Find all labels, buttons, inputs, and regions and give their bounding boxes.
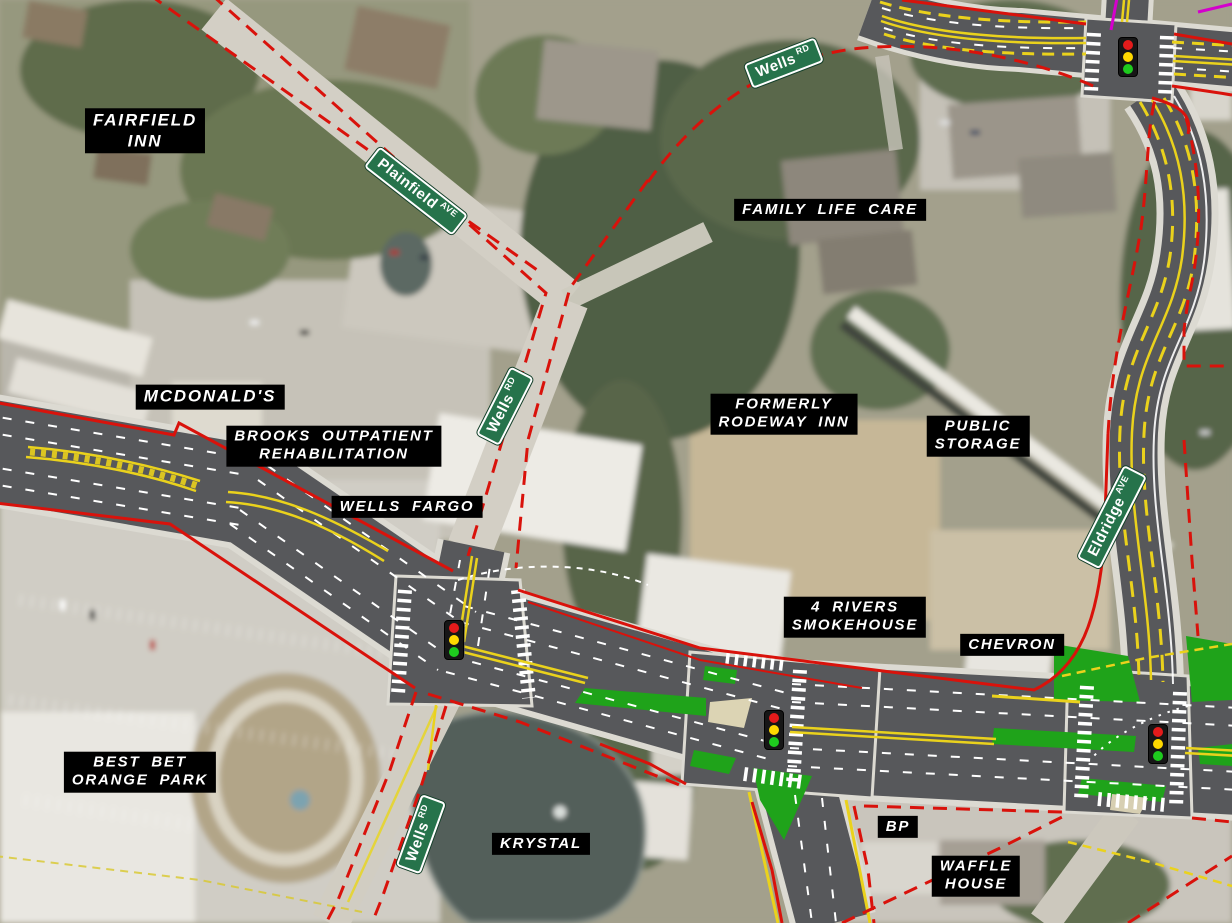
street-sign-suffix: RD (502, 375, 517, 392)
street-sign-suffix: RD (794, 42, 811, 56)
label-four-rivers-smokehouse: 4 RIVERS SMOKEHOUSE (784, 597, 926, 638)
signal-red-lens (1153, 727, 1163, 737)
signal-green-lens (1153, 751, 1163, 761)
best-bet-building (0, 712, 195, 923)
signal-green-lens (449, 647, 459, 657)
traffic-signal-icon (444, 620, 464, 660)
aerial-plan-map: PlainfieldAVE WellsRD WellsRD EldridgeAV… (0, 0, 1232, 923)
label-chevron: CHEVRON (960, 634, 1064, 656)
signal-yellow-lens (769, 725, 779, 735)
label-bp: BP (878, 816, 918, 838)
signal-yellow-lens (449, 635, 459, 645)
label-wells-fargo: WELLS FARGO (332, 496, 483, 518)
label-family-life-care: FAMILY LIFE CARE (734, 199, 926, 221)
signal-red-lens (1123, 40, 1133, 50)
label-best-bet-orange-park: BEST BET ORANGE PARK (64, 752, 216, 793)
label-public-storage: PUBLIC STORAGE (927, 416, 1030, 457)
signal-yellow-lens (1153, 739, 1163, 749)
signal-green-lens (1123, 64, 1133, 74)
street-sign-suffix: RD (416, 803, 430, 820)
traffic-signal-icon (764, 710, 784, 750)
traffic-signal-icon (1118, 37, 1138, 77)
signal-red-lens (769, 713, 779, 723)
label-brooks-outpatient: BROOKS OUTPATIENT REHABILITATION (226, 426, 441, 467)
label-fairfield-inn: FAIRFIELD INN (85, 108, 205, 153)
label-waffle-house: WAFFLE HOUSE (932, 856, 1020, 897)
small-pond (380, 232, 432, 296)
label-formerly-rodeway-inn: FORMERLY RODEWAY INN (711, 394, 858, 435)
label-mcdonalds: MCDONALD'S (136, 385, 285, 410)
label-krystal: KRYSTAL (492, 833, 590, 855)
signal-red-lens (449, 623, 459, 633)
signal-yellow-lens (1123, 52, 1133, 62)
signal-green-lens (769, 737, 779, 747)
traffic-signal-icon (1148, 724, 1168, 764)
